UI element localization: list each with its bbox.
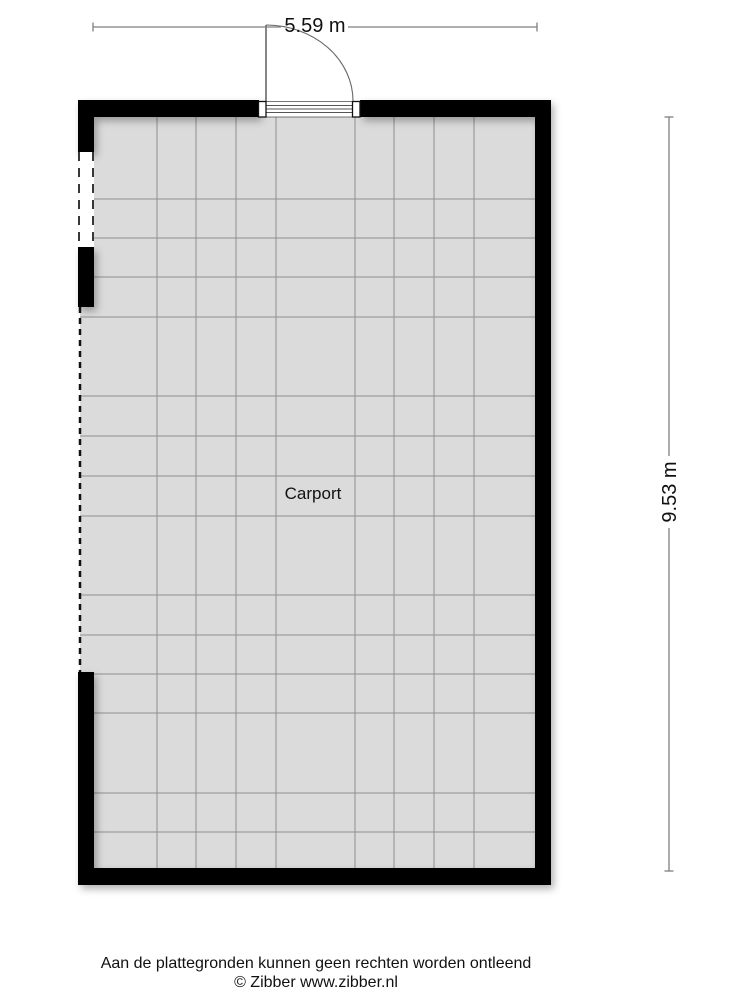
wall-bottom (78, 868, 551, 885)
footer-disclaimer: Aan de plattegronden kunnen geen rechten… (101, 955, 532, 972)
floorplan-canvas: 5.59 m 9.53 m Carport Aan de plattegrond… (0, 0, 750, 1000)
floorplan-page: 5.59 m 9.53 m Carport Aan de plattegrond… (0, 0, 750, 1000)
wall-top-left (78, 100, 259, 117)
floor-open-strip (80, 307, 96, 672)
wall-left-middle (78, 247, 94, 307)
wall-top-right (360, 100, 551, 117)
width-dimension-label: 5.59 m (284, 15, 345, 37)
door-jamb-left (259, 102, 267, 118)
door-jamb-right (353, 102, 361, 118)
wall-right (535, 100, 551, 885)
window-glass (78, 152, 94, 247)
footer-copyright: © Zibber www.zibber.nl (234, 974, 398, 991)
window (78, 152, 94, 247)
wall-left-bottom (78, 672, 94, 885)
height-dimension-label: 9.53 m (659, 461, 681, 522)
wall-left-top (78, 100, 94, 152)
room-label: Carport (285, 484, 342, 503)
door (259, 25, 361, 117)
